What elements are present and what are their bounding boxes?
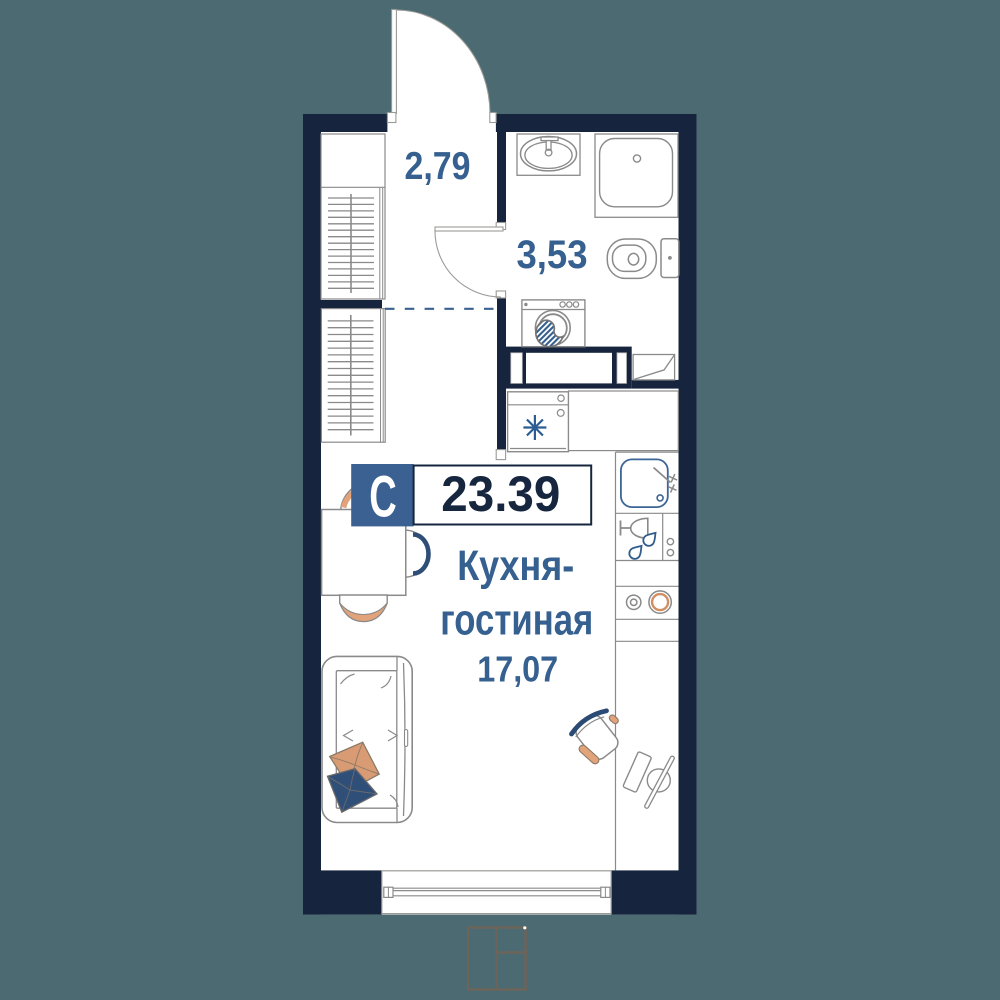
svg-text:3,53: 3,53: [517, 233, 588, 277]
svg-text:С: С: [369, 465, 397, 530]
svg-text:гостиная: гостиная: [440, 596, 593, 645]
svg-text:23.39: 23.39: [441, 466, 560, 522]
svg-text:Кухня-: Кухня-: [457, 542, 574, 590]
svg-text:2,79: 2,79: [405, 145, 471, 188]
svg-text:17,07: 17,07: [477, 649, 558, 690]
